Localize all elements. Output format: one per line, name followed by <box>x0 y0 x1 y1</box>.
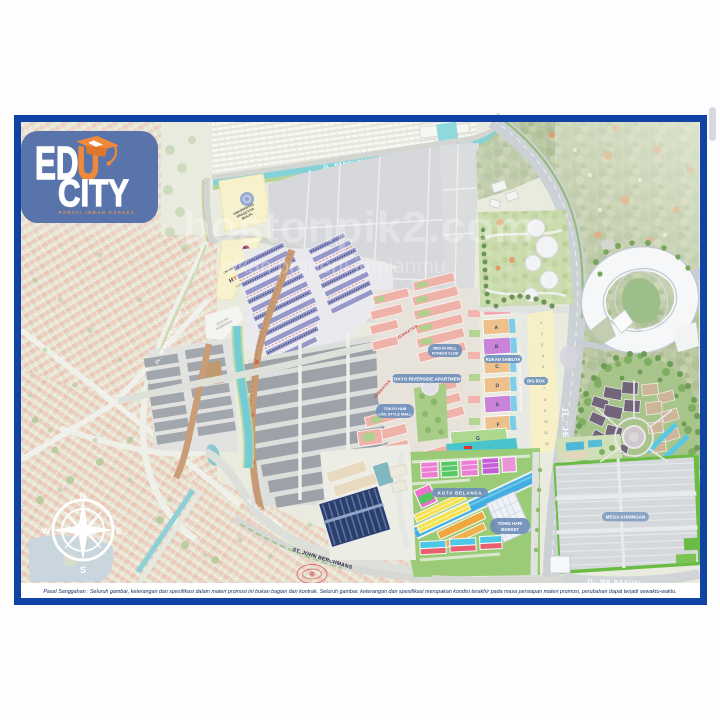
svg-text:7: 7 <box>543 387 545 391</box>
svg-text:KOTA BELANDA: KOTA BELANDA <box>438 490 483 495</box>
svg-text:RUKAN SHIBUYA: RUKAN SHIBUYA <box>486 357 521 362</box>
svg-text:G: G <box>476 436 480 442</box>
svg-text:S: S <box>80 565 86 575</box>
svg-text:12: 12 <box>545 442 549 446</box>
svg-text:LIVE STYLE MALL: LIVE STYLE MALL <box>378 412 412 416</box>
svg-text:11: 11 <box>544 431 548 435</box>
svg-text:MARKET: MARKET <box>501 527 519 532</box>
svg-text:9: 9 <box>544 409 546 413</box>
svg-text:10: 10 <box>544 420 548 424</box>
svg-text:MEGA KUNINGAN: MEGA KUNINGAN <box>606 515 646 520</box>
svg-text:E: E <box>116 526 122 536</box>
svg-text:FITNESS CLUB: FITNESS CLUB <box>432 352 459 356</box>
svg-text:3: 3 <box>541 343 543 347</box>
svg-text:W: W <box>42 526 51 536</box>
svg-text:N: N <box>80 491 87 501</box>
svg-text:MED IN WELL: MED IN WELL <box>433 347 458 351</box>
svg-text:1: 1 <box>540 321 542 325</box>
svg-text:BIG BOX: BIG BOX <box>527 379 545 384</box>
svg-text:TIONG HARI: TIONG HARI <box>498 521 523 526</box>
svg-text:4: 4 <box>542 354 544 358</box>
svg-text:PANTAI INDAH KAPUK2: PANTAI INDAH KAPUK2 <box>59 210 135 215</box>
svg-text:TOKYO RIVERSIDE APARTMENT: TOKYO RIVERSIDE APARTMENT <box>391 376 463 381</box>
svg-text:bostonpik2.com: bostonpik2.com <box>183 203 534 252</box>
svg-text:wujudkan properti impianmu: wujudkan properti impianmu <box>182 255 446 278</box>
svg-text:2: 2 <box>541 332 543 336</box>
svg-text:8: 8 <box>544 398 546 402</box>
svg-text:5: 5 <box>542 365 544 369</box>
svg-text:TOKYO HUB: TOKYO HUB <box>384 407 407 411</box>
svg-text:CITY: CITY <box>58 173 129 215</box>
svg-text:Pasal Sanggahan : Seluruh gamb: Pasal Sanggahan : Seluruh gambar, ketera… <box>43 589 676 595</box>
svg-text:F: F <box>496 422 499 428</box>
